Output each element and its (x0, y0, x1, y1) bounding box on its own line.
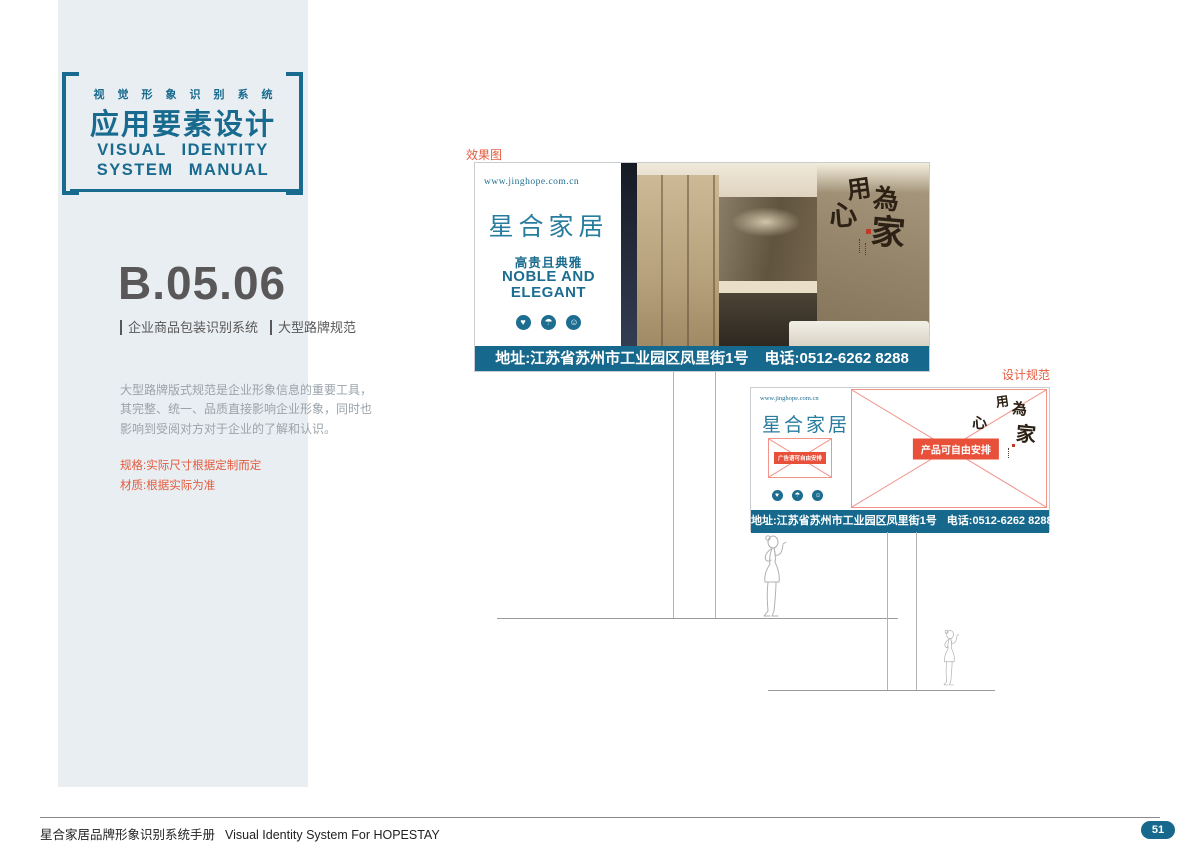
address-text: 地址:江苏省苏州市工业园区凤里街1号 (495, 350, 748, 367)
slogan-placeholder-label: 广告语可自由安排 (774, 452, 826, 464)
subtitle-billboard-spec: 大型路牌规范 (270, 320, 356, 335)
address-text: 地址:江苏省苏州市工业园区凤里街1号 (751, 515, 937, 527)
slogan-en-line2: ELEGANT (475, 284, 622, 301)
phone-text: 电话:0512-6262 8288 (765, 350, 909, 367)
spec-billboard: www.jinghope.com.cn 星合家居 广告语可自由安排 ♥ ☂ ☺ … (750, 387, 1050, 532)
umbrella-icon: ☂ (792, 490, 803, 501)
human-scale-figure-small (933, 628, 963, 695)
calligraphy-char-wei: 為 (872, 186, 901, 215)
brand-logo: 星合家居 (475, 207, 622, 243)
product-placeholder-label: 产品可自由安排 (913, 438, 999, 459)
photo-dark-edge (621, 163, 637, 346)
brand-logo-small: 星合家居 (762, 410, 850, 437)
address-bar: 地址:江苏省苏州市工业园区凤里街1号电话:0512-6262 8288 (475, 346, 929, 371)
calligraphy-char-jia: 家 (1015, 423, 1037, 445)
heart-icon: ♥ (516, 315, 531, 330)
billboard-pole-line (673, 372, 674, 618)
section-description: 大型路牌版式规范是企业形象信息的重要工具，其完整、统一、品质直接影响企业形象，同… (120, 381, 372, 439)
smiley-icon: ☺ (566, 315, 581, 330)
photo-towel-bench (789, 321, 929, 346)
calligraphy-seal (1012, 444, 1015, 447)
website-url: www.jinghope.com.cn (484, 177, 579, 187)
social-icons-row-small: ♥ ☂ ☺ (769, 487, 826, 505)
calligraphy-char-jia: 家 (870, 215, 907, 252)
slogan-placeholder-box: 广告语可自由安排 (768, 438, 832, 478)
vi-manual-page: 视觉形象识别系统 应用要素设计 VISUAL IDENTITY SYSTEM M… (0, 0, 1200, 855)
vi-title-cn: 应用要素设计 (74, 101, 292, 143)
design-spec-label: 设计规范 (958, 366, 1050, 383)
human-scale-figure (748, 534, 792, 627)
section-code: B.05.06 (118, 256, 286, 310)
address-bar-small: 地址:江苏省苏州市工业园区凤里街1号电话:0512-6262 8288 (751, 510, 1049, 533)
ground-line (497, 618, 898, 619)
calligraphy-char-xin: 心 (828, 201, 858, 231)
footer-title-en: Visual Identity System For HOPESTAY (225, 828, 440, 842)
vi-title-en-line1: VISUAL IDENTITY (74, 141, 292, 160)
sidebar-panel: 视觉形象识别系统 应用要素设计 VISUAL IDENTITY SYSTEM M… (58, 0, 308, 787)
spec-notes: 规格:实际尺寸根据定制而定 材质:根据实际为准 (120, 456, 261, 496)
footer-rule (40, 817, 1160, 818)
footer-title-cn: 星合家居品牌形象识别系统手册 (40, 828, 215, 842)
phone-text: 电话:0512-6262 8288 (947, 515, 1053, 527)
product-placeholder-box: 用 心 為 家 产品可自由安排 (851, 389, 1047, 508)
interior-photo: 用 心 為 家 (621, 163, 929, 346)
calligraphy-seal (866, 229, 871, 234)
calligraphy-char-wei: 為 (1011, 401, 1028, 418)
page-number-badge: 51 (1141, 821, 1175, 839)
vi-tagline: 视觉形象识别系统 (74, 86, 294, 102)
effect-billboard: www.jinghope.com.cn 星合家居 高贵且典雅 NOBLE AND… (474, 162, 930, 372)
billboard-pole-line (715, 372, 716, 618)
photo-wardrobe (637, 175, 719, 346)
photo-mirror-glow (731, 207, 801, 237)
effect-render-label: 效果图 (466, 146, 502, 163)
photo-wall-light (817, 163, 929, 193)
website-url-small: www.jinghope.com.cn (760, 395, 819, 402)
heart-icon: ♥ (772, 490, 783, 501)
subtitle-packaging-system: 企业商品包装识别系统 (120, 320, 258, 335)
billboard-pole-line (887, 532, 888, 690)
smiley-icon: ☺ (812, 490, 823, 501)
calligraphy-char-yong: 用 (995, 395, 1010, 410)
umbrella-icon: ☂ (541, 315, 556, 330)
calligraphy-sideline-2 (865, 243, 866, 255)
vi-title-en-line2: SYSTEM MANUAL (74, 161, 292, 180)
photo-counter (719, 281, 821, 293)
calligraphy-char-xin: 心 (971, 415, 987, 431)
section-subtitles: 企业商品包装识别系统大型路牌规范 (120, 317, 368, 336)
slogan-en-line1: NOBLE AND (475, 268, 622, 285)
footer-title: 星合家居品牌形象识别系统手册Visual Identity System For… (40, 824, 440, 843)
spec-material-note: 材质:根据实际为准 (120, 476, 261, 496)
billboard-pole-line (916, 532, 917, 690)
header-underline-decor (70, 189, 300, 192)
calligraphy-sideline (1008, 448, 1009, 458)
spec-size-note: 规格:实际尺寸根据定制而定 (120, 456, 261, 476)
calligraphy-sideline (859, 239, 860, 253)
social-icons-row: ♥ ☂ ☺ (475, 314, 622, 332)
